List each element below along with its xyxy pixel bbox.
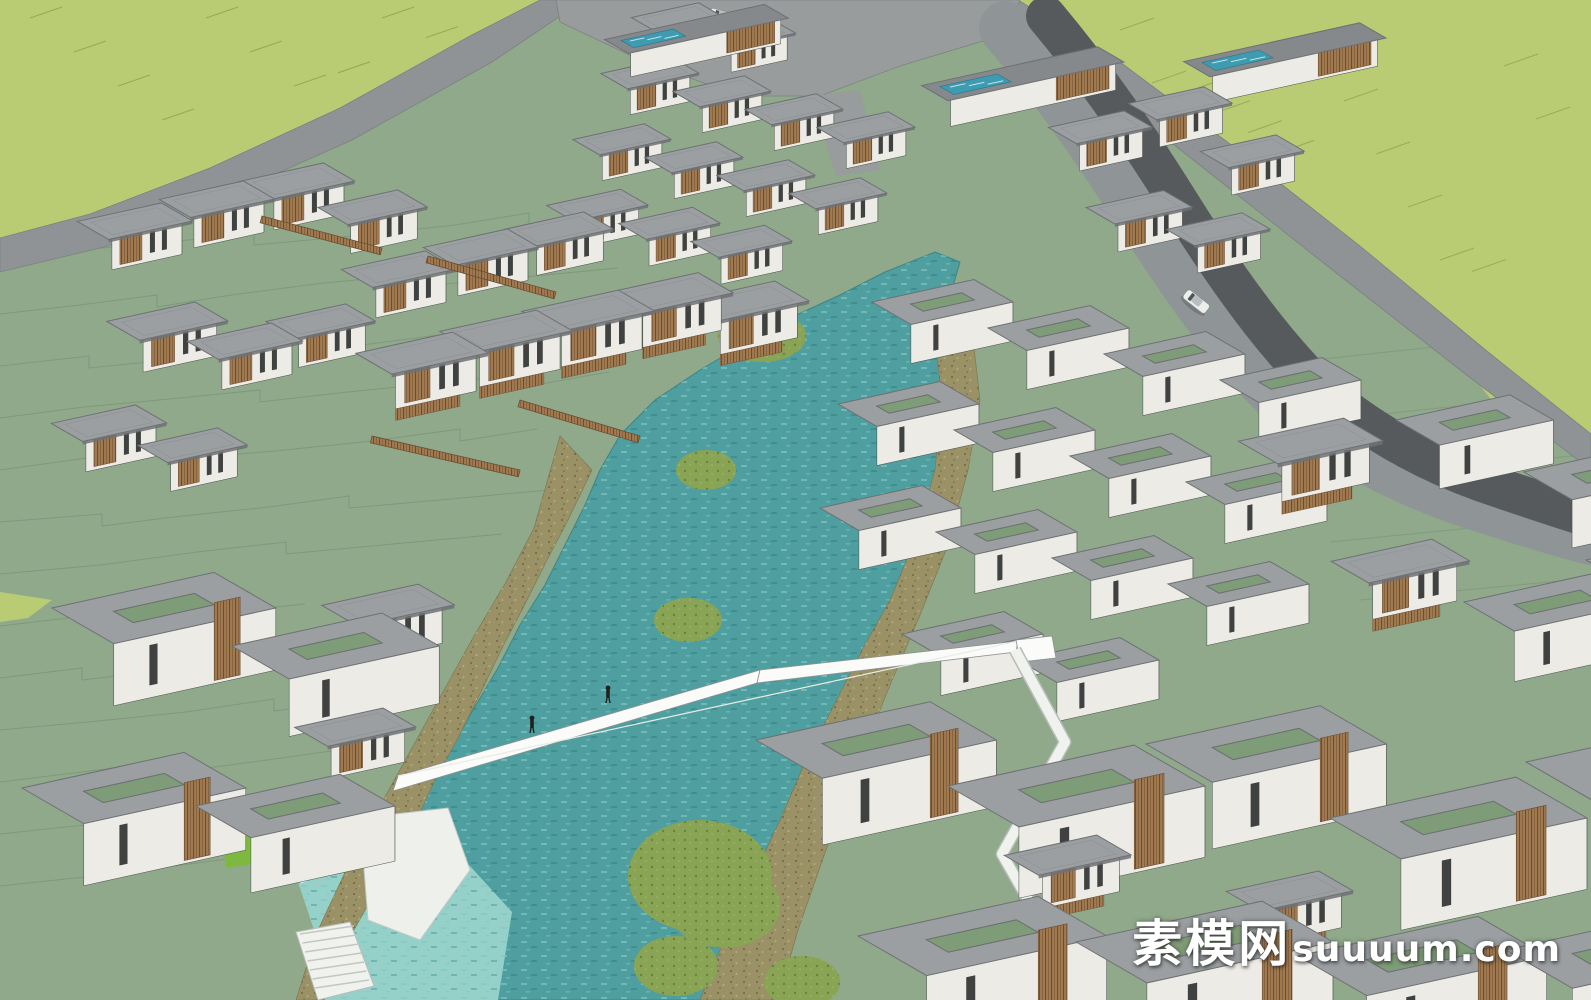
watermark: 素模网suuuum.com xyxy=(1132,904,1561,976)
site-model-render xyxy=(0,0,1591,1000)
watermark-latin-text: suuuum.com xyxy=(1292,929,1561,970)
render-viewport: 素模网suuuum.com xyxy=(0,0,1591,1000)
watermark-cn-text: 素模网 xyxy=(1132,904,1291,976)
